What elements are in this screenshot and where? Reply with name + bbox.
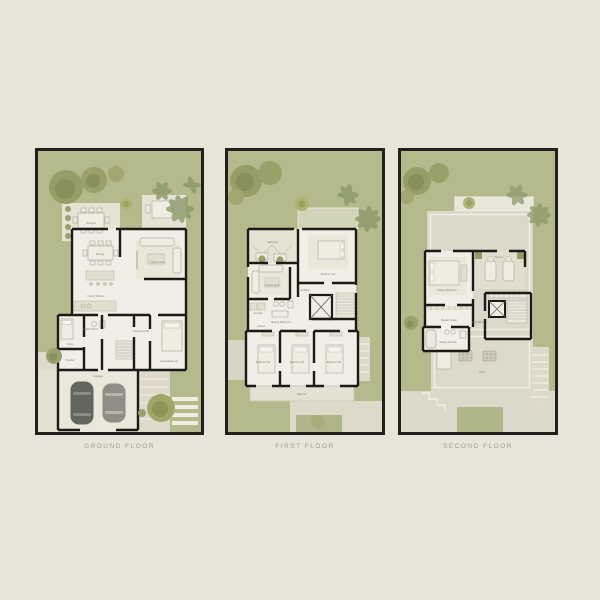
car-light [102,383,126,423]
master-closet-room [425,305,473,327]
room-label-shared-bathroom: Shared Bathroom [271,320,291,324]
room-label-master-ensuite: Master Ensuite [439,340,457,344]
room-label-entrance-hall: Entrance Hall [133,329,149,333]
room-label-bedroom-02: Bedroom 02 [321,272,336,276]
roof-patch [298,208,358,229]
room-label-roof: Roof [479,370,485,374]
bedroom-02-furniture [308,235,348,269]
room-label-circulation: Circulation [298,288,311,292]
room-label-circulation: Circulation [472,320,485,324]
front-balcony [248,229,298,264]
room-label-bedroom-03: Bedroom 03 [256,360,271,364]
first-floor-panel: Balcony Bedroom 02 Family Room Laundry S… [225,148,385,435]
elevator-shaft [489,301,505,317]
ground-floor-plan-drawing: Terrace Dining Family Living Family Kitc… [38,151,201,432]
room-label-master-bedroom: Master Bedroom [437,288,456,292]
room-label-master-closet: Master Closet [441,318,457,322]
ground-floor-caption: GROUND FLOOR [35,442,204,452]
room-label-terrace: Terrace [86,221,96,225]
second-floor-plan-drawing: Master Bedroom Terrace Master Closet Mas… [401,151,555,432]
room-label-closet: Closet [257,324,265,328]
staircase [336,293,356,319]
room-label-bedroom-05: Bedroom 05 [327,360,342,364]
room-label-bedroom-04: Bedroom 04 [290,360,305,364]
guest-bed [162,321,182,351]
room-label-family-living: Family Living [150,260,166,264]
room-label-dining: Dining [96,252,105,256]
room-label-maids-room: Maid's Room [83,327,98,331]
room-label-garage: Garage [93,374,103,378]
room-label-family-room: Family Room [265,283,280,287]
first-floor-caption: FIRST FLOOR [225,442,385,452]
room-label-powder: Powder [66,358,75,362]
master-bed [429,261,459,285]
elevator-shaft [310,295,332,319]
second-floor-panel: Master Bedroom Terrace Master Closet Mas… [398,148,558,435]
room-label-balcony-front: Balcony [268,240,279,244]
family-room-furniture [252,265,290,295]
master-bedroom-room [425,251,473,305]
room-label-laundry: Laundry [253,311,263,315]
second-floor-caption: SECOND FLOOR [398,442,558,452]
room-label-terrace: Terrace [495,255,504,259]
first-floor-plan-drawing: Balcony Bedroom 02 Family Room Laundry S… [228,151,382,432]
interior-stairs [116,341,132,359]
ground-floor-panel: Terrace Dining Family Living Family Kitc… [35,148,204,435]
room-label-balcony-rear: Balcony [297,392,307,396]
floor-plan-sheet: Terrace Dining Family Living Family Kitc… [0,0,600,600]
car-dark [70,381,94,425]
room-label-guest-bedroom: Guest Bedroom [160,359,178,363]
master-ensuite-room [423,327,469,351]
sofa-set [136,238,181,279]
room-label-store: Store [67,342,74,346]
room-label-family-kitchen: Family Kitchen [87,294,105,298]
